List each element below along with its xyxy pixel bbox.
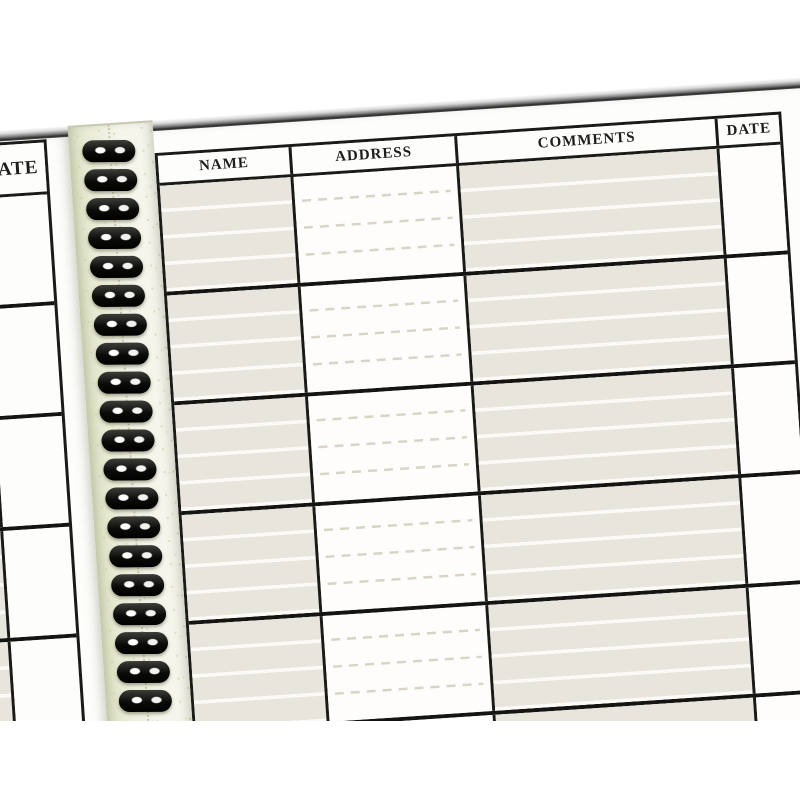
spiral-ring xyxy=(115,632,168,654)
comments-cell xyxy=(466,258,733,381)
spiral-rings xyxy=(68,122,153,128)
date-cell xyxy=(0,416,66,527)
entry-rows xyxy=(160,145,800,721)
date-cell xyxy=(727,254,795,364)
spiral-ring xyxy=(119,690,172,712)
comments-cell xyxy=(488,588,755,711)
entry-row xyxy=(0,416,69,540)
spiral-ring xyxy=(96,343,149,365)
product-photo: DATE NAME ADDRESS COMMENTS DATE xyxy=(0,0,800,800)
spiral-ring xyxy=(98,371,151,393)
date-cell xyxy=(3,527,73,638)
entry-row xyxy=(0,637,84,721)
right-page-table: NAME ADDRESS COMMENTS DATE xyxy=(155,112,800,721)
date-cell xyxy=(749,584,800,694)
date-cell xyxy=(0,195,51,306)
entry-row xyxy=(0,527,76,651)
spiral-ring xyxy=(113,603,166,625)
name-cell xyxy=(189,616,330,721)
address-cell xyxy=(308,385,481,502)
spiral-ring xyxy=(94,314,147,336)
address-cell xyxy=(323,605,496,721)
date-cell xyxy=(0,305,59,416)
spiral-ring xyxy=(86,198,139,220)
photo-area: DATE NAME ADDRESS COMMENTS DATE xyxy=(0,0,800,721)
guest-book: DATE NAME ADDRESS COMMENTS DATE xyxy=(0,59,800,721)
date-cell xyxy=(11,638,81,721)
right-page: NAME ADDRESS COMMENTS DATE xyxy=(138,67,800,721)
comments-cell xyxy=(481,478,748,601)
spiral-ring xyxy=(117,661,170,683)
entry-row xyxy=(0,305,62,429)
spiral-ring xyxy=(109,545,162,567)
spiral-ring xyxy=(103,458,156,480)
date-cell xyxy=(720,145,788,255)
spiral-ring xyxy=(111,574,164,596)
address-cell xyxy=(301,276,474,393)
spiral-ring xyxy=(105,487,158,509)
spiral-ring xyxy=(88,227,141,249)
spiral-ring xyxy=(84,169,137,191)
spiral-ring xyxy=(100,400,153,422)
comments-cell xyxy=(474,368,741,491)
spiral-ring xyxy=(107,516,160,538)
spiral-ring xyxy=(82,140,135,162)
spiral-ring xyxy=(90,256,143,278)
date-cell xyxy=(741,474,800,584)
address-cell xyxy=(315,495,488,612)
address-cell xyxy=(293,166,466,283)
date-column-header: DATE xyxy=(718,115,781,146)
entry-row xyxy=(0,194,54,318)
name-cell xyxy=(182,506,323,621)
spiral-ring xyxy=(101,429,154,451)
comments-cell xyxy=(459,149,726,272)
name-cell xyxy=(167,287,308,402)
left-date-header: DATE xyxy=(0,143,44,196)
name-cell xyxy=(160,177,301,292)
name-cell xyxy=(174,396,315,511)
spiral-ring xyxy=(92,285,145,307)
date-cell xyxy=(756,693,800,721)
date-cell xyxy=(734,364,800,474)
